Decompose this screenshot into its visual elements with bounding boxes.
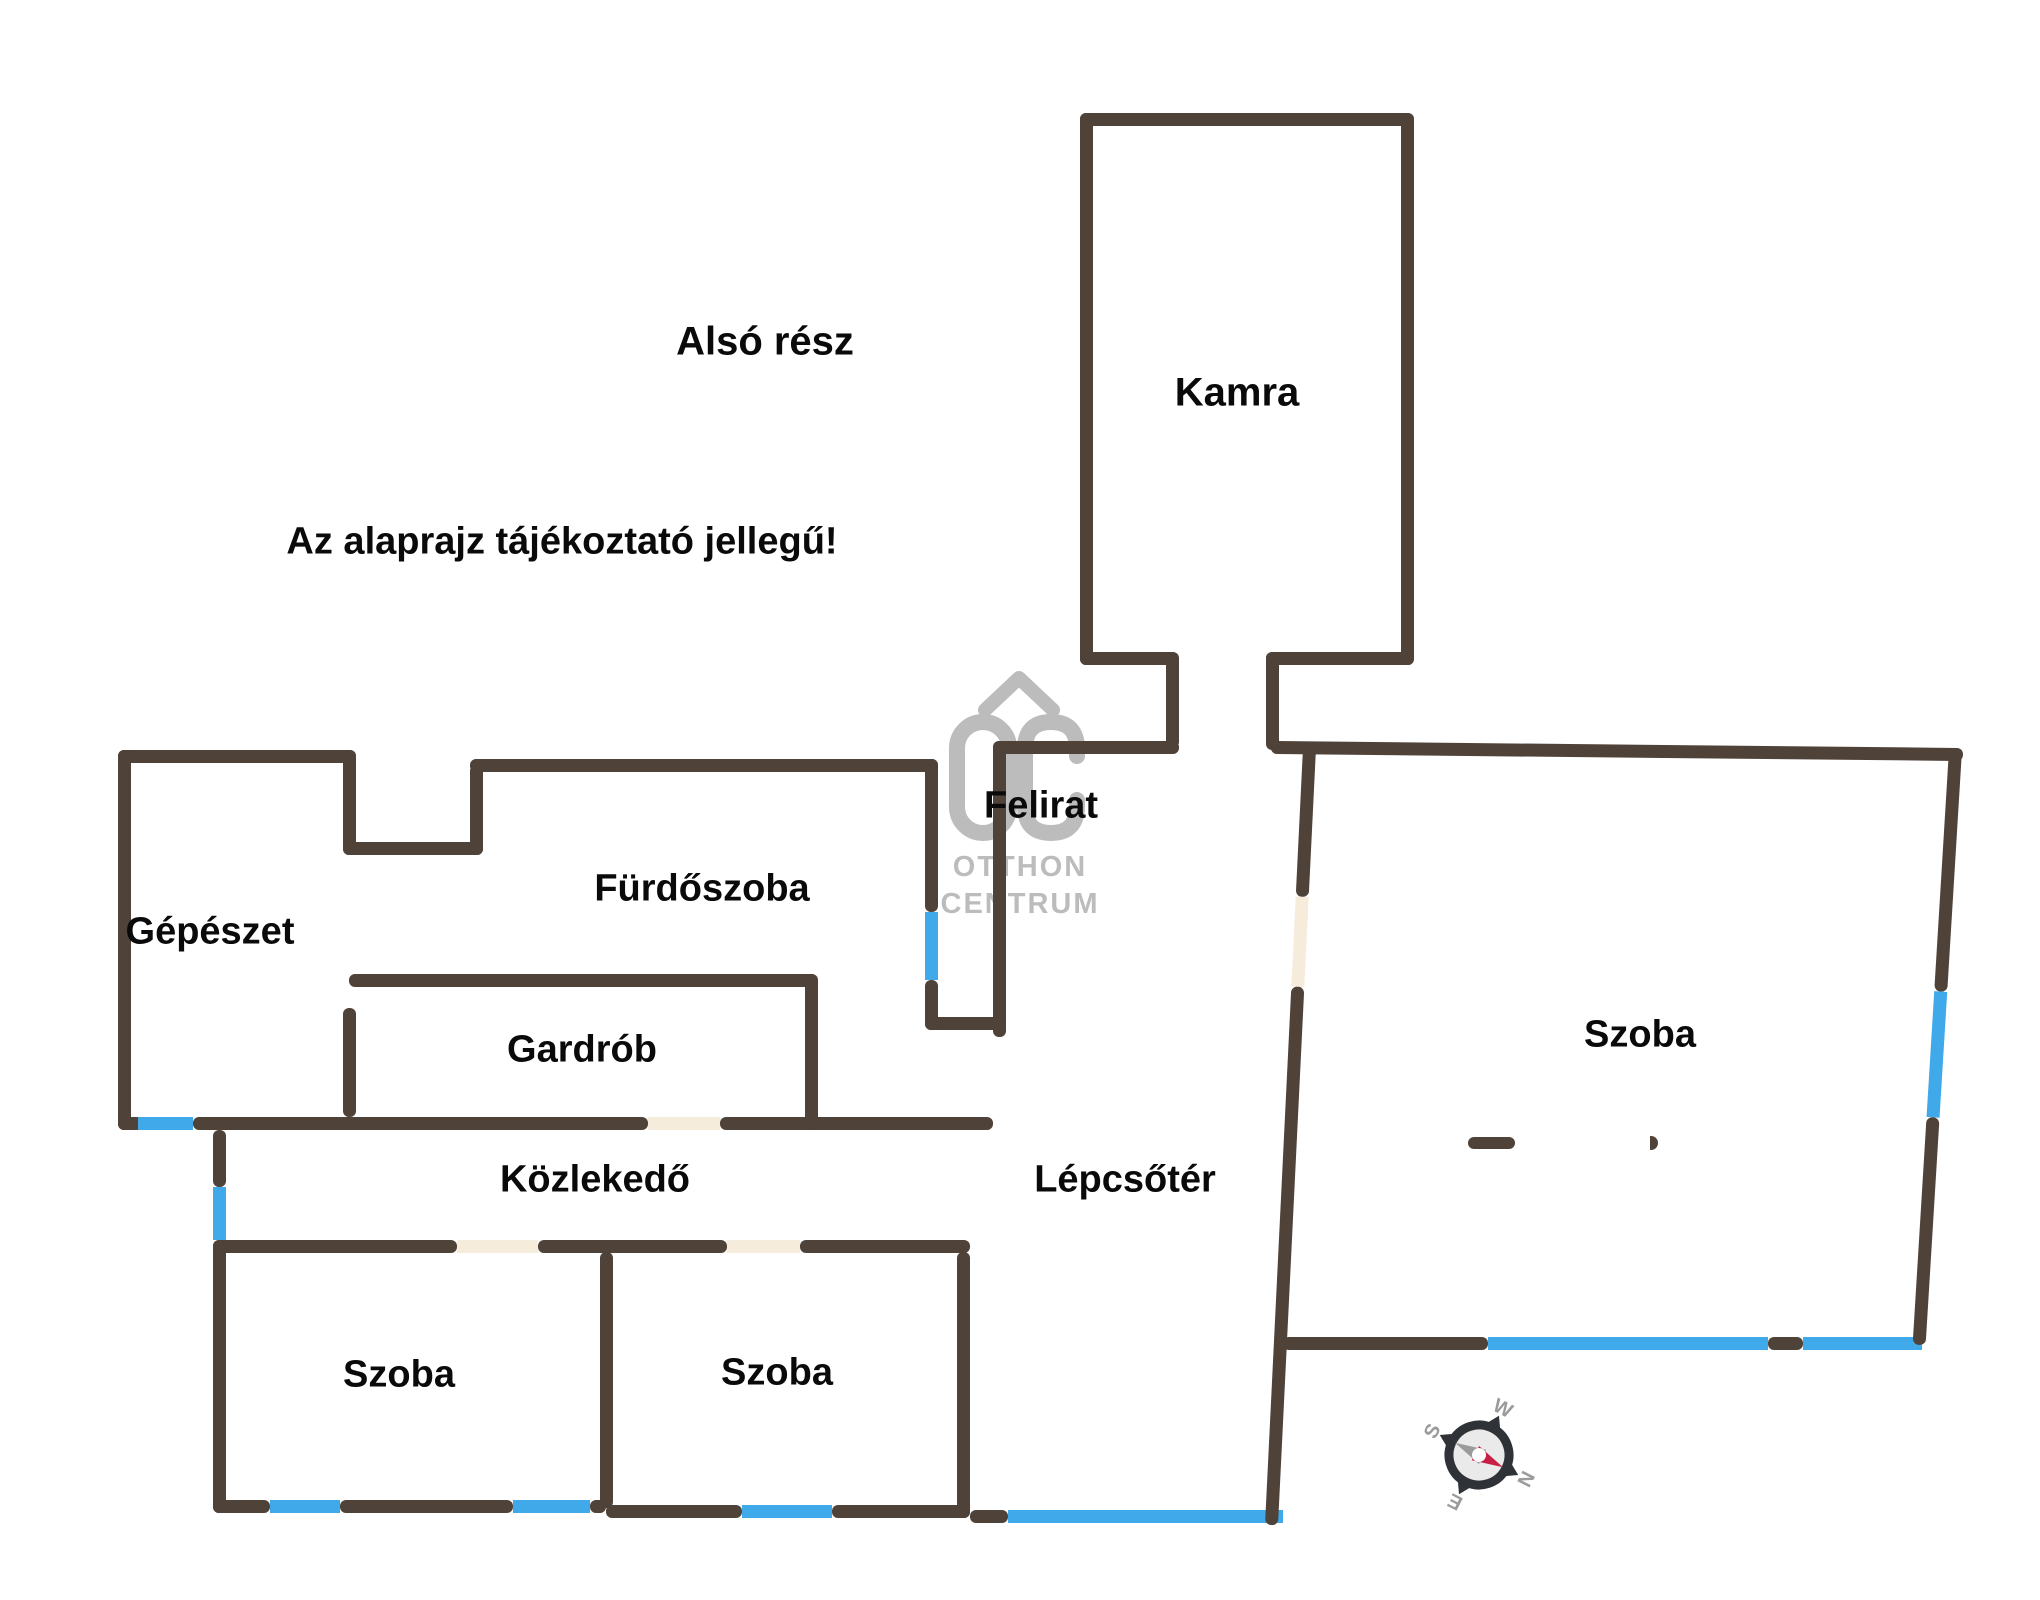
west-window-window [213,1187,226,1240]
south-wall-f [970,1510,1008,1523]
compass-letter-s: S [1420,1420,1446,1442]
corridor-bottom-door-2-door [727,1240,800,1253]
west-wall-lower [213,1240,226,1513]
door-stub [1468,1137,1515,1149]
bedroom3-bottom-wall-a [1283,1337,1488,1350]
south-window-1-window [270,1500,340,1513]
corridor-top-door-door [648,1117,720,1130]
wardrobe-wall-right [805,974,818,1129]
kamra-exit-left-v [1166,652,1179,748]
stairwell-wall-top [993,741,1179,754]
mechanical-wall-right [343,750,356,855]
corridor-bottom-wall-c [800,1240,970,1253]
room-kozlekedo: Közlekedő [500,1159,690,1202]
bedroom3-bottom-window-2-window [1803,1337,1922,1350]
corridor-bottom-wall-b [538,1240,727,1253]
kamra-wall-left [1080,113,1093,665]
bedroom3-wall-right-wall-segment [1934,750,1962,992]
compass-letter-n: N [1512,1467,1538,1490]
bedroom3-wall-top [1271,741,1963,761]
bathroom-wall-top [470,759,938,772]
stairwell-wall-right [1265,748,1316,1526]
south-wall-d [606,1505,742,1518]
room-lepcsoter: Lépcsőtér [1034,1159,1216,1202]
kamra-exit-left-h [1080,652,1178,665]
kamra-exit-right-h [1266,652,1414,665]
disclaimer: Az alaprajz tájékoztató jellegű! [286,521,837,564]
bedroom3-bottom-wall-b [1768,1337,1803,1350]
bedroom3-bottom-window-1-window [1488,1337,1768,1350]
south-window-4-window [1008,1510,1283,1523]
room-furdoszoba: Fürdőszoba [594,868,809,911]
room-szoba-east: Szoba [1584,1014,1696,1057]
south-wall-a [213,1500,270,1513]
room-szoba-southwest: Szoba [343,1354,455,1397]
stairwell-wall-right-door-segment [1291,897,1308,988]
corridor-bottom-wall-a [213,1240,457,1253]
floor-plan-canvas: OTTHON CENTRUM Alsó részAz alaprajz tájé… [0,0,2040,1600]
corridor-bottom-door-1-door [457,1240,538,1253]
stairwell-wall-right-wall-segment [1265,986,1304,1525]
bedroom3-wall-right [1913,750,1962,1346]
room-gardrob: Gardrób [507,1029,657,1072]
corridor-top-window-window [138,1117,193,1130]
section-title: Alsó rész [676,320,854,365]
room-gepeszet: Gépészet [126,911,295,954]
bathroom-window-right-window [925,912,938,980]
bedroom-divider-wall [600,1252,613,1508]
kamra-exit-right-v [1266,652,1279,750]
label-felirat: Felirat [984,785,1098,828]
kamra-wall-top [1080,113,1414,126]
compass-rose-icon: N E S W [1399,1375,1559,1535]
wardrobe-wall-left [343,1008,356,1117]
plan-layer: Alsó részAz alaprajz tájékoztató jellegű… [0,0,2040,1600]
stairwell-wall-right-wall-segment [1296,748,1316,897]
compass-letter-e: E [1444,1489,1466,1515]
bathroom-wall-right-low [925,980,938,1030]
room-kamra: Kamra [1175,371,1300,416]
door-swing-arc [1650,1136,1658,1150]
bedroom2-wall-right [957,1252,970,1518]
bedroom3-wall-right-window-segment [1927,991,1948,1118]
wardrobe-wall-top [349,974,817,987]
room-szoba-south: Szoba [721,1352,833,1395]
bedroom3-wall-top-wall-segment [1271,741,1963,761]
bedroom3-wall-right-wall-segment [1913,1117,1940,1345]
step-wall-h [343,842,483,855]
bathroom-wall-right-up [925,759,938,912]
corridor-top-wall-c [720,1117,993,1130]
west-wall-upper [213,1130,226,1187]
corridor-top-wall-b [193,1117,648,1130]
kamra-wall-right [1401,113,1414,665]
south-window-3-window [742,1505,832,1518]
south-window-2-window [513,1500,590,1513]
south-wall-e [832,1505,970,1518]
south-wall-c [590,1500,606,1513]
south-wall-b [340,1500,513,1513]
mechanical-wall-top [118,750,356,763]
compass-letter-w: W [1489,1395,1516,1423]
